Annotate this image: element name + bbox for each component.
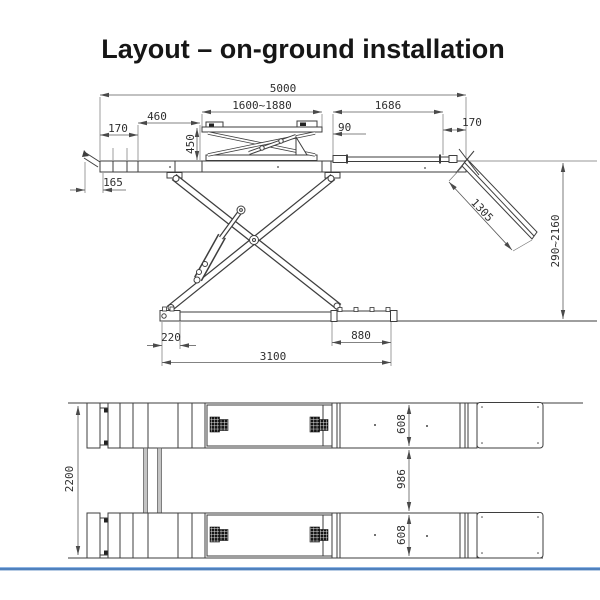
dimension-3100: 3100 (162, 350, 391, 363)
drawing-canvas: Layout – on-ground installation 5000 (0, 0, 600, 600)
dim-608-bottom-label: 608 (395, 525, 408, 545)
dimension-platform-width-bottom: 608 (395, 515, 409, 556)
dimension-approach: 1686 (333, 99, 443, 112)
plan-top-platform (87, 403, 543, 449)
dim-jack-platform-label: 1600~1880 (232, 99, 292, 112)
dim-wedge-label: 165 (103, 176, 123, 189)
dimension-track-gap: 986 (395, 450, 409, 511)
dim-880-label: 880 (351, 329, 371, 342)
dimension-overall-width: 2200 (63, 406, 78, 555)
dimension-jack-height: 450 (184, 128, 197, 160)
dim-overall-width-label: 2200 (63, 466, 76, 493)
rolling-jack (202, 121, 322, 161)
dimension-platform-width-top: 608 (395, 405, 409, 446)
dimension-wedge: 165 (70, 176, 126, 190)
dimension-90: 90 (333, 121, 366, 134)
dimension-overall-length: 5000 (100, 82, 466, 95)
dim-3100-label: 3100 (260, 350, 287, 363)
dimension-880: 880 (332, 329, 391, 343)
dim-220-label: 220 (161, 331, 181, 344)
dim-90-label: 90 (338, 121, 351, 134)
base-frame (160, 307, 597, 322)
plan-view: 2200 608 986 608 (63, 403, 583, 559)
dimension-220: 220 (147, 331, 196, 346)
hose-covers (144, 448, 162, 513)
dim-ramp-label: 1305 (468, 196, 496, 224)
extension-lines (85, 97, 466, 366)
dimension-460: 460 (138, 110, 200, 123)
dimension-jack-platform: 1600~1880 (202, 99, 322, 112)
dim-170-left-label: 170 (108, 122, 128, 135)
side-view: 5000 1600~1880 1686 460 170 90 170 450 (70, 82, 597, 366)
dim-986-label: 986 (395, 469, 408, 489)
page-title: Layout – on-ground installation (101, 34, 504, 64)
dimension-170-right: 170 (443, 116, 482, 130)
slide: Layout – on-ground installation 5000 (0, 0, 600, 600)
plan-bottom-platform (87, 513, 543, 559)
dim-overall-length-label: 5000 (270, 82, 297, 95)
dimension-170-left: 170 (100, 122, 138, 135)
dim-608-top-label: 608 (395, 414, 408, 434)
dim-460-label: 460 (147, 110, 167, 123)
dim-jack-height-label: 450 (184, 134, 197, 154)
dim-170-right-label: 170 (462, 116, 482, 129)
scissor-mechanism (167, 173, 340, 311)
slide-accent-line (0, 567, 600, 570)
dim-approach-label: 1686 (375, 99, 402, 112)
dim-lift-height-label: 290~2160 (549, 215, 562, 268)
